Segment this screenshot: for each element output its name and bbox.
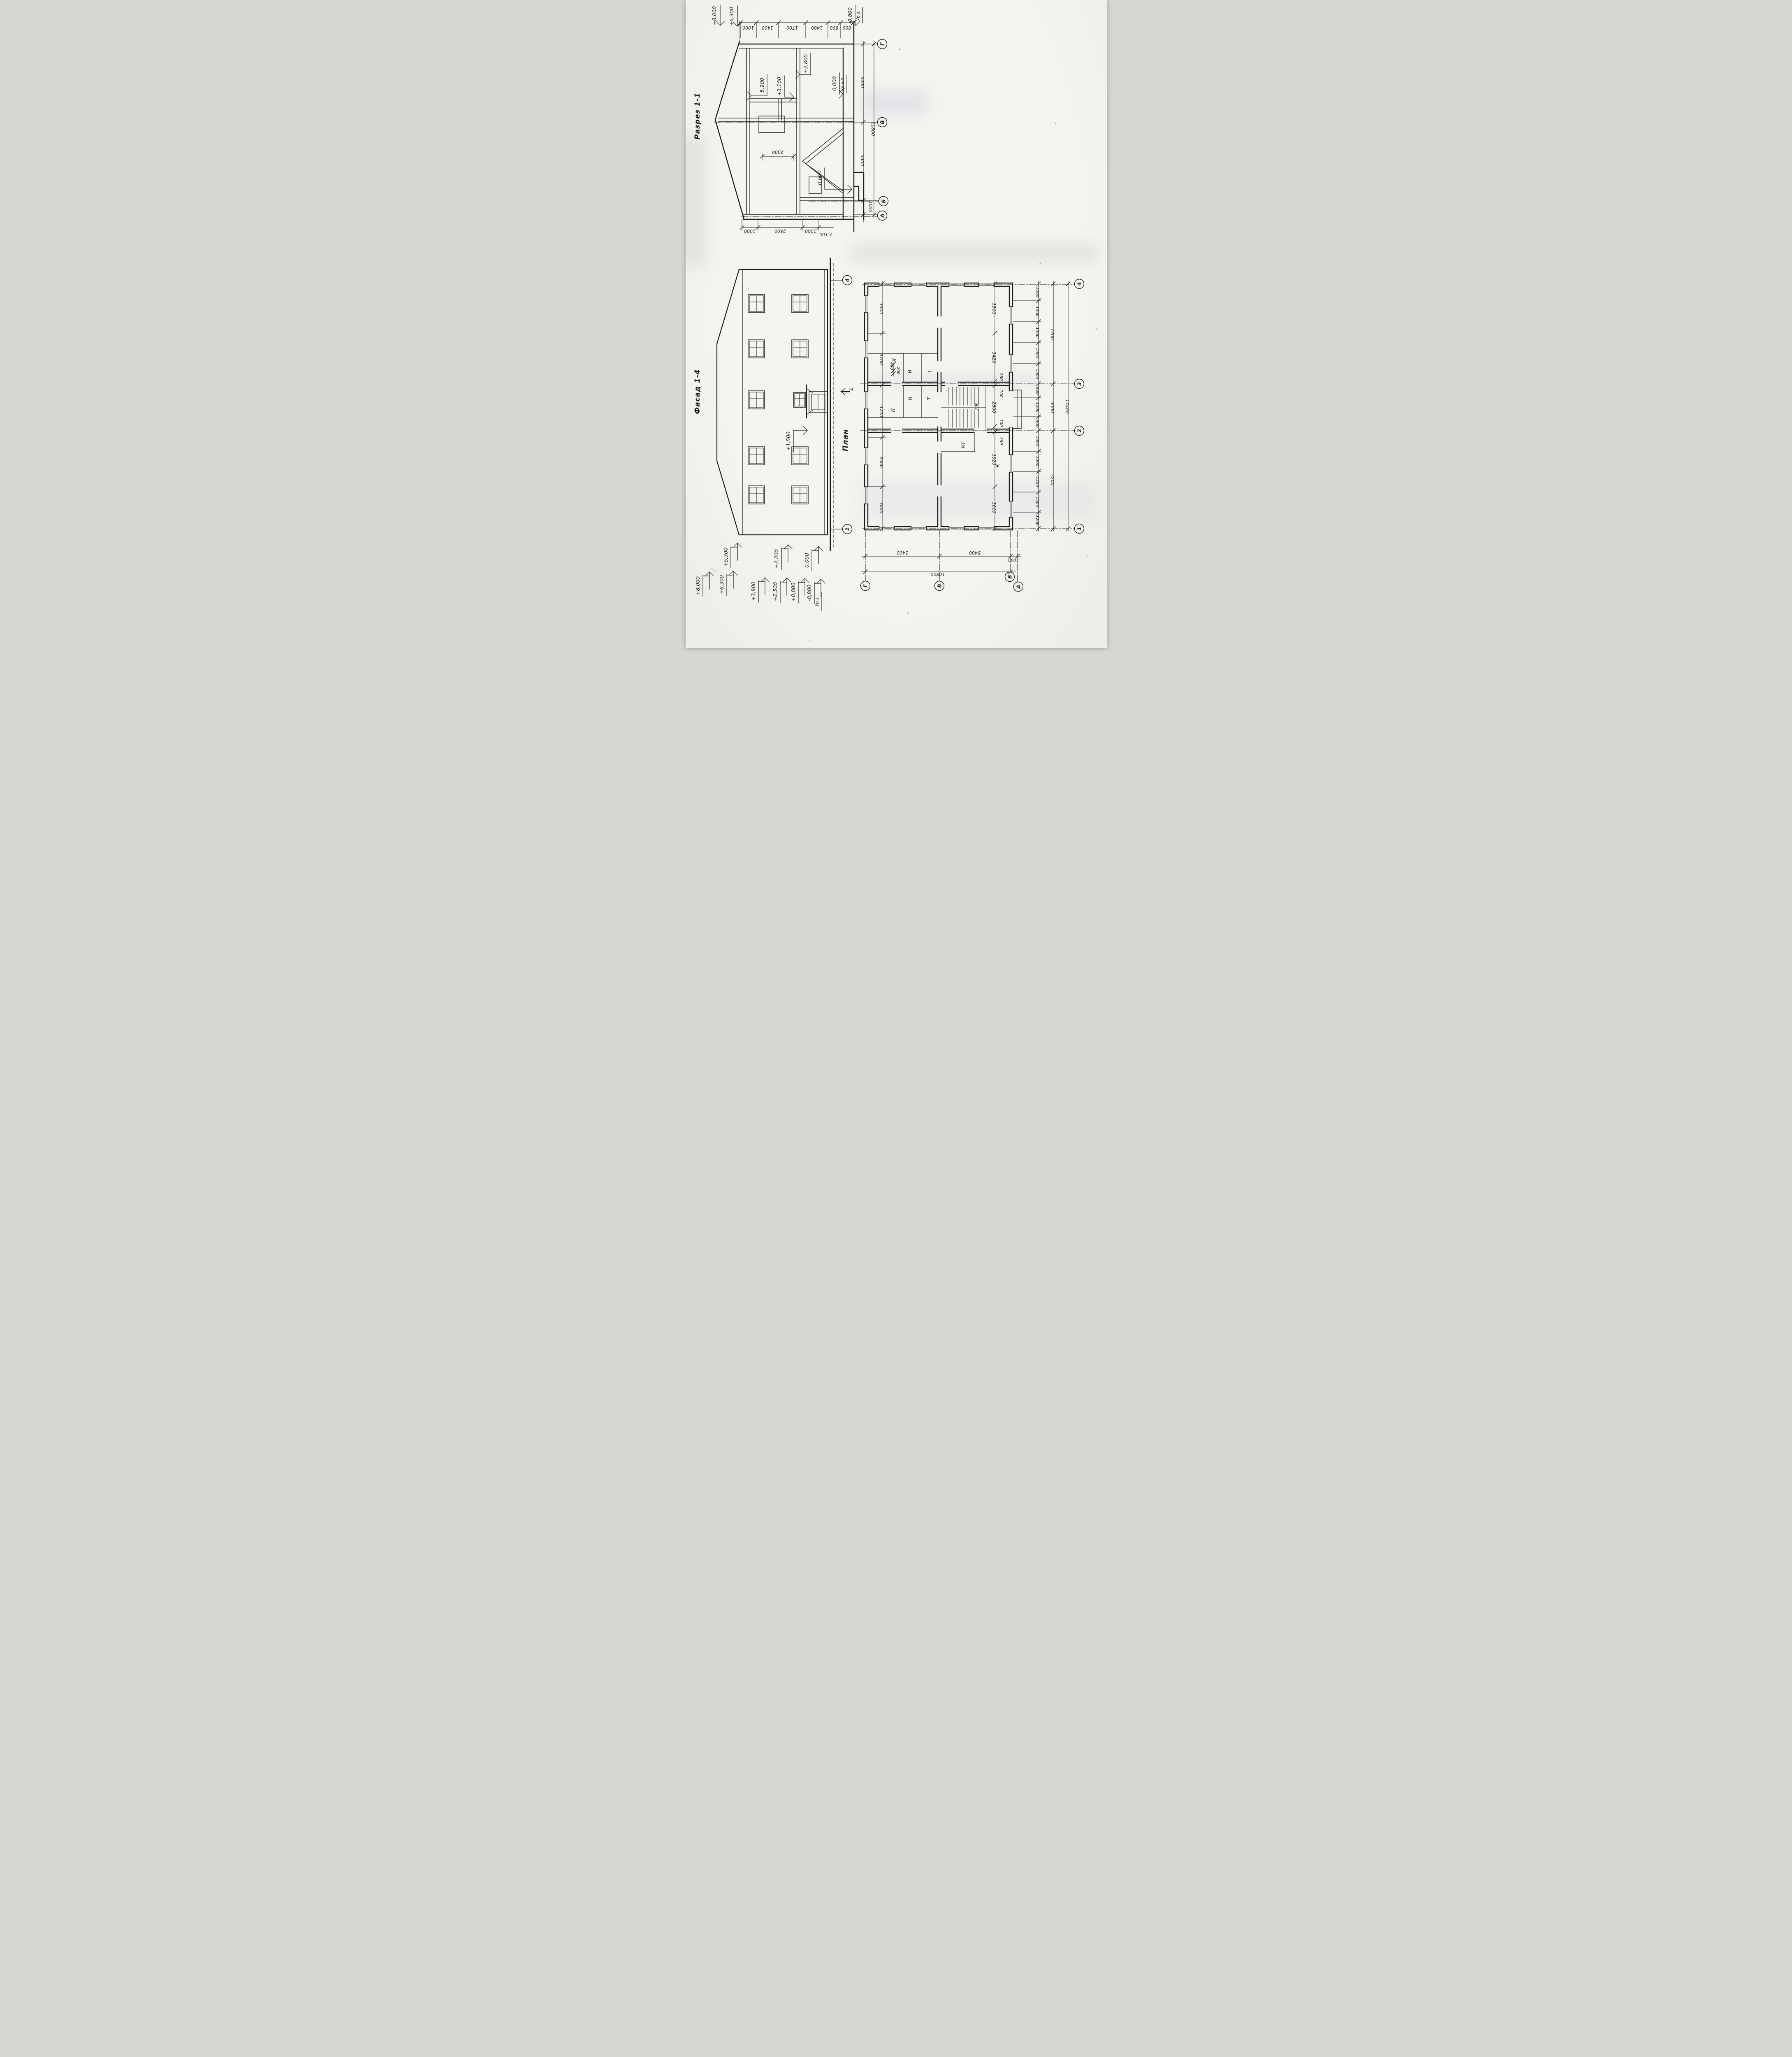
plan-title: План bbox=[842, 429, 850, 451]
elevation-label: +3,900 bbox=[750, 582, 756, 601]
dim-label: 1500 bbox=[1035, 306, 1039, 316]
dim-label: 100 bbox=[999, 419, 1003, 427]
dim-label: 2000 bbox=[772, 149, 784, 155]
elevation-label: +2,800 bbox=[802, 54, 809, 73]
room-label: К bbox=[890, 408, 896, 412]
dim-label: 200 bbox=[896, 367, 900, 374]
elevation-label: -0,800 bbox=[847, 7, 853, 24]
elevation-label: +0,800 bbox=[790, 583, 796, 601]
elevation-label: 0,000 bbox=[804, 553, 810, 568]
elevation-label: +2,500 bbox=[772, 582, 778, 601]
elevation-label: 0,000 bbox=[831, 76, 837, 91]
dim-label: 7200 bbox=[1050, 474, 1055, 485]
section-view bbox=[714, 5, 888, 231]
dim-label: 1200 bbox=[1035, 515, 1039, 525]
facade-title: Фасад 1-4 bbox=[693, 369, 702, 414]
plan-axis-circles bbox=[860, 279, 1084, 592]
dim-label: 3700 bbox=[879, 406, 884, 417]
dim-label: 100 bbox=[999, 390, 1003, 397]
plan-window-jambs bbox=[865, 283, 1013, 530]
axis-label: Г bbox=[862, 584, 868, 587]
dim-label: 280 bbox=[999, 373, 1003, 381]
dim-label: 3000 bbox=[1050, 402, 1055, 413]
plan-texts: План 3500 3700 3700 3500 3000 3500 3420 … bbox=[842, 282, 1083, 589]
axis-label: 1 bbox=[1076, 527, 1082, 531]
dim-label: 7200 bbox=[1050, 328, 1055, 340]
elevation-label: +6,300 bbox=[719, 575, 725, 594]
dim-label: 1500 bbox=[1035, 327, 1039, 337]
elevation-label: +6,300 bbox=[728, 7, 735, 26]
facade-secondary-lines bbox=[742, 269, 825, 535]
elevation-label: +1,500 bbox=[785, 432, 791, 450]
plan-window-lines bbox=[865, 284, 1012, 529]
section-title: Разрез 1-1 bbox=[693, 93, 702, 139]
dim-label: 900 bbox=[1035, 387, 1039, 395]
dim-label: 1000 bbox=[744, 228, 756, 234]
dim-label: 2,100 bbox=[819, 232, 832, 237]
dim-label: 3000 bbox=[991, 502, 997, 513]
section-top-dim-line bbox=[739, 21, 855, 41]
axis-label: Г bbox=[879, 42, 885, 46]
plan-walls bbox=[865, 283, 1013, 530]
dim-label: 1000 bbox=[742, 25, 754, 30]
axis-label: Б bbox=[880, 199, 886, 203]
dim-label: 1400 bbox=[762, 25, 773, 30]
dim-label: 1500 bbox=[1035, 436, 1039, 446]
dim-label: 5400 bbox=[897, 550, 908, 555]
facade-outline bbox=[717, 269, 828, 535]
room-label: В bbox=[906, 370, 913, 374]
dim-label: 3920 bbox=[991, 454, 997, 465]
dim-label: 1000 bbox=[868, 201, 873, 212]
dim-label: 2800 bbox=[991, 402, 997, 413]
blueprint-sheet: Разрез 1-1 1000 1400 1700 1400 800 800 +… bbox=[686, 0, 1107, 648]
elevation-label: +3,100 bbox=[776, 77, 782, 96]
dim-label: 1500 bbox=[1035, 348, 1039, 358]
ground-level-label: Ур.з. bbox=[856, 10, 861, 21]
plan-view bbox=[860, 279, 1084, 592]
dim-label: 1400 bbox=[811, 25, 823, 30]
elevation-label: 5,900 bbox=[759, 78, 765, 93]
dim-label: 800 bbox=[842, 25, 851, 30]
room-label: ВТ bbox=[960, 441, 967, 449]
dim-label: 5400 bbox=[860, 155, 865, 166]
elevation-label: +2,200 bbox=[773, 549, 779, 568]
axis-label: 4 bbox=[1076, 282, 1082, 286]
floor-level-label: Ур.ч.п bbox=[840, 77, 845, 91]
dim-label: 800 bbox=[830, 25, 838, 30]
dim-label: 3500 bbox=[991, 303, 997, 314]
axis-label: 4 bbox=[844, 279, 850, 283]
dim-label: 17400 bbox=[1064, 399, 1070, 414]
dim-label: 3500 bbox=[879, 303, 884, 314]
dim-label: 1000 bbox=[805, 228, 816, 234]
axis-label: 2 bbox=[1076, 429, 1082, 433]
elevation-label: +8,000 bbox=[711, 6, 717, 25]
dim-label: 280 bbox=[999, 437, 1003, 445]
axis-label: А bbox=[879, 214, 885, 218]
dim-label: 1500 bbox=[1035, 497, 1039, 507]
dim-label: 3700 bbox=[879, 353, 884, 365]
facade-windows-inner bbox=[749, 296, 825, 503]
section-walls bbox=[715, 21, 864, 231]
dim-label: 1200 bbox=[1035, 402, 1039, 412]
room-label: К bbox=[891, 358, 897, 362]
plan-partitions bbox=[868, 353, 975, 452]
dim-label: 3420 bbox=[991, 352, 997, 363]
elevation-label: -0,600 bbox=[816, 170, 823, 187]
ground-level-label: Ур.з. bbox=[815, 596, 820, 606]
room-label: Т bbox=[927, 369, 933, 373]
elevation-label: +8,000 bbox=[695, 576, 701, 595]
dim-label: 10800 bbox=[930, 571, 945, 577]
section-axis-circles bbox=[877, 39, 888, 221]
axis-label: 1 bbox=[844, 527, 850, 531]
drawing-canvas: Разрез 1-1 1000 1400 1700 1400 800 800 +… bbox=[686, 0, 1107, 648]
dim-label: 11800 bbox=[870, 122, 876, 136]
axis-label: 3 bbox=[1076, 382, 1082, 386]
elevation-label: -0,800 bbox=[806, 585, 812, 601]
room-label: В bbox=[907, 397, 913, 401]
dim-label: 1700 bbox=[786, 25, 798, 30]
dim-label: 1500 bbox=[1035, 456, 1039, 466]
dim-label: 5400 bbox=[860, 77, 865, 88]
axis-label: Б bbox=[1006, 575, 1013, 579]
pen-squiggle bbox=[709, 569, 717, 571]
dim-label: 3000 bbox=[879, 502, 884, 513]
cut-number-label: 1 bbox=[848, 388, 854, 391]
dim-label: 1200 bbox=[1035, 287, 1039, 297]
room-label: Т bbox=[926, 397, 932, 400]
dim-label: 1500 bbox=[1035, 476, 1039, 487]
dim-label: 2800 bbox=[774, 228, 786, 234]
axis-label: В bbox=[879, 120, 885, 124]
dim-label: 3500 bbox=[879, 456, 884, 468]
plan-porch bbox=[1013, 390, 1021, 429]
facade-windows-outer bbox=[748, 295, 828, 504]
facade-axis-circles bbox=[842, 276, 852, 534]
dim-label: 900 bbox=[1035, 420, 1039, 427]
dim-label: 440 bbox=[889, 362, 894, 370]
dim-label: 1000 bbox=[1008, 557, 1018, 562]
axis-label: В bbox=[936, 584, 942, 588]
dim-label: 1500 bbox=[1035, 369, 1039, 379]
dim-label: 5400 bbox=[969, 550, 981, 555]
elevation-label: +5,300 bbox=[723, 548, 729, 566]
room-label: ЛК bbox=[974, 402, 980, 411]
plan-axis-lines bbox=[860, 285, 1074, 582]
axis-label: А bbox=[1015, 585, 1021, 589]
room-label: К bbox=[995, 463, 1001, 467]
